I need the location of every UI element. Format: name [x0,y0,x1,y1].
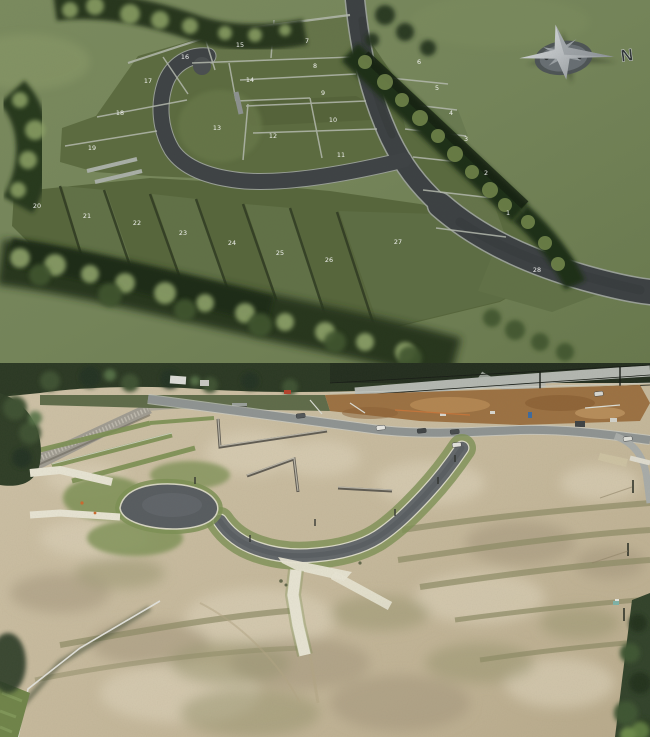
rendered-site-plan: N 12345678910111213141516171819202122232… [0,0,650,363]
render-grain [0,0,650,363]
photo-grain [0,363,650,737]
composite-image: N 12345678910111213141516171819202122232… [0,0,650,737]
aerial-photo [0,363,650,737]
